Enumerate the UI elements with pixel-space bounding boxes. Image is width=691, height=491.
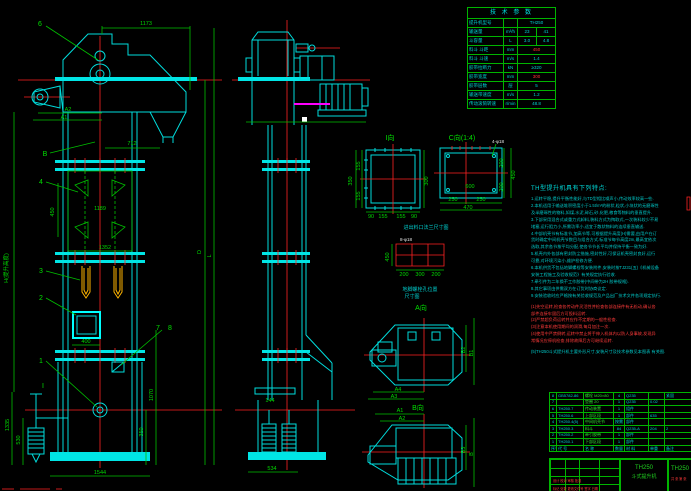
callout-7: 7 — [156, 325, 160, 332]
parts-cell-seq: 1 — [550, 439, 557, 446]
table-row: 2TH250.2牵引胶带1部件 — [550, 432, 691, 439]
parts-list-table: 8GB5782-86螺栓 M20×804Q235紧固7垫圈 201Q2350.0… — [549, 392, 691, 452]
dim-c-250b: 250 — [476, 197, 485, 203]
dim-a2: A2 — [65, 107, 72, 113]
dim-door-width: 400 — [81, 339, 90, 345]
table-row: 料斗 斗距mm450 — [468, 46, 556, 55]
cad-canvas: 1173 712 450 1189 1352 400 1335 530 1070… — [0, 0, 691, 491]
tech-label: 胶带宽度 — [468, 73, 504, 82]
note-line: 选取,其余各节按平均分配,使各节节长平均并保持平衡一致为好. — [531, 244, 690, 251]
dim-top-width: 1173 — [140, 21, 152, 27]
notes-block: TH型提升机具有下列特点: 1.运转平稳,提升平衡性能好,与TD型相比噪声小,传… — [531, 183, 690, 356]
parts-cell-seq: 3 — [550, 425, 557, 432]
table-row: 4TH250.4(5)中间机壳节按需部件 — [550, 419, 691, 426]
parts-cell-code: TH250.4(5) — [557, 419, 584, 426]
title-block: 标记 处数 更改文件号 签字 日期 设计 校对 审核 批准 TH250 斗式提升… — [549, 458, 691, 491]
note-line: 堵塞,运行阻力小,所需功率小,适宜于散状物料的连续垂直输送. — [531, 224, 690, 231]
tech-label: 胶带层数 — [468, 82, 504, 91]
detail-view-c: C向(1:4) 4-φ18 600 250 250 470 200 200 45… — [434, 133, 517, 211]
dim-c-250a: 250 — [448, 197, 457, 203]
tech-value: TH250 — [518, 19, 556, 28]
tech-unit: L — [504, 37, 518, 46]
section-i-mark: I — [42, 383, 44, 390]
dim-c-450: 450 — [511, 170, 517, 179]
parts-cell-seq: 4 — [550, 419, 557, 426]
dim-side-base: 534 — [267, 466, 276, 472]
note-line: 1.运转平稳,提升平衡性能好,与TD型相比噪声小,传动效率较高一些. — [531, 196, 690, 203]
dim-bucket-pitch: 450 — [50, 207, 56, 216]
dim-i-300: 300 — [424, 176, 430, 185]
drawing-number: TH250 — [671, 466, 691, 472]
note-line: 9.安装验收时应严格按有关验收规范及产品出厂技术文件各项规定执行. — [531, 293, 690, 300]
dim-bolt-200a: 200 — [399, 272, 408, 278]
parts-cell-wt — [649, 439, 665, 446]
dim-offset: 712 — [127, 141, 136, 147]
dim-d-label: D — [197, 250, 203, 254]
view-c-note: 4-φ18 — [492, 139, 504, 144]
parts-cell-mat: 部件 — [625, 432, 649, 439]
tech-table-title: 技 术 参 数 — [468, 8, 556, 19]
drawing-number-cell: TH250 共 张 第 张 — [668, 459, 691, 491]
tech-value: 4.8 — [537, 37, 556, 46]
parts-cell-note: 备注 — [665, 445, 691, 452]
callout-4: 4 — [39, 179, 43, 186]
dim-c-600: 600 — [465, 184, 474, 190]
caption-flange: 进出料口法兰尺寸图 — [403, 224, 448, 231]
table-row: 8GB5782-86螺栓 M20×804Q235紧固 — [550, 393, 691, 400]
parts-cell-name: 螺栓 M20×80 — [584, 393, 614, 400]
parts-cell-code: TH250.3 — [557, 425, 584, 432]
title-block-name: TH250 斗式提升机 — [620, 459, 668, 491]
side-view: 534 144 — [232, 20, 370, 472]
dim-c-200b: 200 — [499, 182, 505, 191]
parts-cell-name: 名 称 — [584, 445, 614, 452]
tech-label: 料斗 斗速 — [468, 55, 504, 64]
signature-grid: 标记 处数 更改文件号 签字 日期 设计 校对 审核 批准 — [550, 459, 620, 491]
parts-cell-code — [557, 399, 584, 406]
parts-cell-seq: 6 — [550, 406, 557, 413]
dim-plan-a2: A2 — [399, 416, 406, 422]
tech-value: 23 — [518, 28, 537, 37]
tech-label: 料斗 斗距 — [468, 46, 504, 55]
plan-view-bottom: A1 A2 B3 B — [362, 408, 475, 488]
note-line: 6.本机供货不包括地脚螺栓等安装附件,安装时按TJ231(五)《机械设备 — [531, 265, 690, 272]
parts-cell-wt: 单重 — [649, 445, 665, 452]
parts-cell-mat: 部件 — [625, 412, 649, 419]
side-flange-bands — [262, 158, 310, 363]
dim-plan-b3: B3 — [461, 447, 467, 454]
dim-i-350: 350 — [348, 176, 354, 185]
parts-cell-name: 中间机壳节 — [584, 419, 614, 426]
parts-cell-code: TH250.2 — [557, 432, 584, 439]
parts-cell-mat: Q235-A — [625, 425, 649, 432]
tech-unit: m/s — [504, 55, 518, 64]
tech-parameter-table: 技 术 参 数 提升机型号TH250 输送量m³/h2341 斗容量L3.04.… — [467, 7, 556, 109]
dim-c-470: 470 — [463, 205, 472, 211]
note-line-red: 常情况应停机检查,排除故障后方可继续运转. — [531, 338, 690, 345]
tech-unit — [504, 19, 518, 28]
tech-label: 输送量 — [468, 28, 504, 37]
dim-l-label: L — [207, 254, 213, 257]
tech-unit: m/s — [504, 91, 518, 100]
parts-cell-code: 代 号 — [557, 445, 584, 452]
parts-cell-seq: 2 — [550, 432, 557, 439]
parts-cell-qty: 1 — [614, 432, 625, 439]
parts-cell-name: 上部区段 — [584, 412, 614, 419]
parts-cell-note — [665, 439, 691, 446]
note-line: 2.本机适用于输送堆积密度小于1.5t/m³的粉状,粒状,小块状的无磨琢性 — [531, 203, 690, 210]
takeup-weight — [28, 428, 44, 462]
tech-value: ≥320 — [518, 64, 556, 73]
parts-cell-name: 料斗 — [584, 425, 614, 432]
table-row: 胶带宽度mm300 — [468, 73, 556, 82]
dim-h-label: H(提升高度) — [2, 253, 10, 283]
parts-cell-name: 牵引胶带 — [584, 432, 614, 439]
callout-6: 6 — [38, 21, 42, 28]
callout-2: 2 — [39, 295, 43, 302]
front-view: 1173 712 450 1189 1352 400 1335 530 1070… — [2, 21, 222, 476]
parts-cell-wt: 635 — [649, 412, 665, 419]
callout-3: 3 — [39, 268, 43, 275]
note-line: 5.机壳内外各部有密封防尘措施,密封性好,可保证机壳密封良好,运行 — [531, 251, 690, 258]
dim-plan-a1: A1 — [397, 408, 404, 414]
note-line-red: 部件连接牢固后方可投料运转. — [531, 311, 690, 318]
callout-8: 8 — [168, 325, 172, 332]
parts-cell-qty: 84 — [614, 425, 625, 432]
note-line: 4.中部机壳节有标准节,加高节等,可根据提升高度(H)需要,由用户在订 — [531, 231, 690, 238]
view-i-label: I向 — [386, 133, 395, 142]
table-row: 胶带层数层5 — [468, 82, 556, 91]
parts-cell-code: TH250.6 — [557, 412, 584, 419]
callout-1: 1 — [39, 358, 43, 365]
parts-cell-note — [665, 406, 691, 413]
tech-unit: 层 — [504, 82, 518, 91]
parts-cell-mat: Q235 — [625, 399, 649, 406]
note-line: 8.其它事项由供需双方在订货时协商议定. — [531, 286, 690, 293]
detail-bolt-layout: 8-φ18 450 200 300 200 地脚螺栓孔位置 尺寸图 A向 — [385, 237, 444, 312]
tech-value: 41 — [537, 28, 556, 37]
dim-plan-a4: A4 — [395, 387, 402, 393]
model-number: TH250 — [621, 465, 667, 471]
parts-cell-wt — [649, 432, 665, 439]
tech-label: 提升机型号 — [468, 19, 504, 28]
table-row: 传动滚筒转速r/min48.8 — [468, 100, 556, 109]
product-name: 斗式提升机 — [621, 473, 667, 480]
bucket-yellow — [82, 266, 122, 298]
tech-unit: r/min — [504, 100, 518, 109]
dim-a1: A1 — [61, 115, 68, 121]
parts-cell-mat: 材 料 — [625, 445, 649, 452]
parts-cell-qty: 1 — [614, 412, 625, 419]
parts-cell-qty: 4 — [614, 393, 625, 400]
note-line: 3.下部采用混合式或重力式卸料,装料方式为掏取式,一次装料较少不易 — [531, 217, 690, 224]
dim-bolt-200b: 200 — [431, 272, 440, 278]
note-line: 7.牵引件为二年换不工作胶带(中间带为2H 胶带规格). — [531, 279, 690, 286]
table-row: 输送量m³/h2341 — [468, 28, 556, 37]
title-block-red-row: 标记 处数 更改文件号 签字 日期 — [553, 486, 598, 491]
parts-cell-wt — [649, 406, 665, 413]
tech-unit: mm — [504, 46, 518, 55]
dim-plan-b2: B2 — [461, 347, 467, 354]
dim-plan-b: B — [469, 452, 475, 456]
table-row: 输送带速度m/s1.2 — [468, 91, 556, 100]
parts-cell-wt: 204 — [649, 425, 665, 432]
bolt-caption-1: 地脚螺栓孔位置 — [402, 286, 437, 293]
note-line: 安装工程施工及验收规范》有关规定执行验收. — [531, 272, 690, 279]
parts-cell-wt — [649, 419, 665, 426]
parts-cell-mat: 部件 — [625, 439, 649, 446]
table-row: 3TH250.3料斗84Q235-A2042 — [550, 425, 691, 432]
tech-label: 输送带速度 — [468, 91, 504, 100]
dim-i-155a: 155 — [356, 161, 362, 170]
parts-cell-mat: 部件 — [625, 419, 649, 426]
side-springs — [262, 410, 296, 452]
parts-cell-qty: 1 — [614, 406, 625, 413]
grip-square — [302, 117, 307, 122]
note-line-red: (4)使用中严禁倒转,运转中禁止将手伸入机体内以防人身事故,发现异 — [531, 331, 690, 338]
note-line-red: (3)注意本机使用期间的润滑,每月加注一次. — [531, 324, 690, 331]
tech-label: 斗容量 — [468, 37, 504, 46]
dim-plan-b1: B1 — [469, 350, 475, 357]
detail-view-i: I向 350 155 155 300 90 155 155 90 — [348, 133, 430, 220]
note-line: 及半磨琢性的物料,如煤,水泥,碎石,砂,化肥,粮食等物料的垂直提升. — [531, 210, 690, 217]
tech-value: 450 — [518, 46, 556, 55]
table-row: 5TH250.6上部区段1部件635 — [550, 412, 691, 419]
plan-view-top: A4 A3 B2 B1 — [364, 318, 475, 400]
tech-label: 胶带拉断力 — [468, 64, 504, 73]
parts-cell-qty: 按需 — [614, 419, 625, 426]
dim-mid-width: 1189 — [94, 206, 106, 212]
tech-value: 1.2 — [518, 91, 556, 100]
parts-header-row: 序号代 号名 称数量材 料单重备注 — [550, 445, 691, 452]
dim-plan-a3: A3 — [391, 394, 398, 400]
sheet-red: 共 张 第 张 — [671, 476, 686, 481]
bolt-caption-2: 尺寸图 — [404, 293, 419, 300]
parts-cell-name: 垫圈 20 — [584, 399, 614, 406]
dim-side-bracket: 144 — [265, 398, 274, 404]
parts-cell-wt — [649, 393, 665, 400]
table-row: 6TH250.7传动装置1组件 — [550, 406, 691, 413]
dim-c-200a: 200 — [499, 158, 505, 167]
parts-cell-qty: 1 — [614, 399, 625, 406]
bolt-note: 8-φ18 — [400, 237, 412, 242]
tech-value: 5 — [518, 82, 556, 91]
table-row: 提升机型号TH250 — [468, 19, 556, 28]
parts-cell-seq: 序号 — [550, 445, 557, 452]
dim-weight-height: 530 — [16, 435, 22, 444]
parts-cell-note — [665, 412, 691, 419]
callout-b: B — [43, 151, 48, 158]
dim-i-155c: 155 — [378, 214, 387, 220]
dim-i-90b: 90 — [411, 214, 417, 220]
table-row: 1TH250.1下部区段1部件 — [550, 439, 691, 446]
dim-base-width: 1544 — [94, 470, 106, 476]
note-line-red: (1)先空运转,检查各传动件灵活性并检查各部连接件有无松动,确认各 — [531, 304, 690, 311]
dim-boot-height: 1070 — [149, 389, 155, 401]
parts-cell-note: 2 — [665, 425, 691, 432]
dim-i-155d: 155 — [396, 214, 405, 220]
dim-bolt-450: 450 — [385, 252, 391, 261]
table-row: 斗容量L3.04.8 — [468, 37, 556, 46]
table-row: 料斗 斗速m/s1.4 — [468, 55, 556, 64]
note-line: 货时确定中间机壳节数目与组合方式.标准节每节高度2m,最高宜依次 — [531, 237, 690, 244]
parts-cell-mat: 组件 — [625, 406, 649, 413]
parts-cell-code: GB5782-86 — [557, 393, 584, 400]
parts-cell-note: 紧固 — [665, 393, 691, 400]
parts-cell-seq: 8 — [550, 393, 557, 400]
parts-cell-seq: 5 — [550, 412, 557, 419]
tech-value: 3.0 — [518, 37, 537, 46]
dim-i-90a: 90 — [368, 214, 374, 220]
dim-i-155b: 155 — [356, 191, 362, 200]
dim-takeup-height: 1335 — [5, 419, 11, 431]
note-line: 可靠,对环境污染小,维护检修方便. — [531, 258, 690, 265]
tech-unit: kN — [504, 64, 518, 73]
tech-value: 300 — [518, 73, 556, 82]
b-view-label: B向 — [412, 403, 424, 412]
dim-pulley-height: 350 — [139, 427, 145, 436]
parts-cell-code: TH250.7 — [557, 406, 584, 413]
tech-unit: m³/h — [504, 28, 518, 37]
parts-cell-code: TH250.1 — [557, 439, 584, 446]
parts-cell-mat: Q235 — [625, 393, 649, 400]
parts-cell-seq: 7 — [550, 399, 557, 406]
tech-value: 1.4 — [518, 55, 556, 64]
table-row: 7垫圈 201Q2350.02 — [550, 399, 691, 406]
parts-cell-qty: 1 — [614, 439, 625, 446]
parts-cell-note — [665, 419, 691, 426]
view-c-label: C向(1:4) — [449, 133, 475, 142]
parts-cell-note — [665, 399, 691, 406]
dim-flange-width: 1352 — [99, 245, 111, 251]
tech-value: 48.8 — [518, 100, 556, 109]
notes-title: TH型提升机具有下列特点: — [531, 183, 690, 192]
parts-cell-name: 下部区段 — [584, 439, 614, 446]
parts-cell-note — [665, 432, 691, 439]
note-line-red: (2)严禁超负荷运转并应作不定期的一般性检查. — [531, 317, 690, 324]
parts-cell-wt: 0.02 — [649, 399, 665, 406]
a-view-label: A向 — [415, 303, 427, 312]
title-block-red-row2: 设计 校对 审核 批准 — [553, 478, 581, 483]
tech-label: 传动滚筒转速 — [468, 100, 504, 109]
parts-cell-qty: 数量 — [614, 445, 625, 452]
note-line: (5)TH250斗式提升机主要外形尺寸,安装尺寸及技术参数见本图表 有关图. — [531, 349, 690, 356]
table-row: 胶带拉断力kN≥320 — [468, 64, 556, 73]
dim-bolt-300: 300 — [415, 272, 424, 278]
parts-cell-name: 传动装置 — [584, 406, 614, 413]
tech-unit: mm — [504, 73, 518, 82]
